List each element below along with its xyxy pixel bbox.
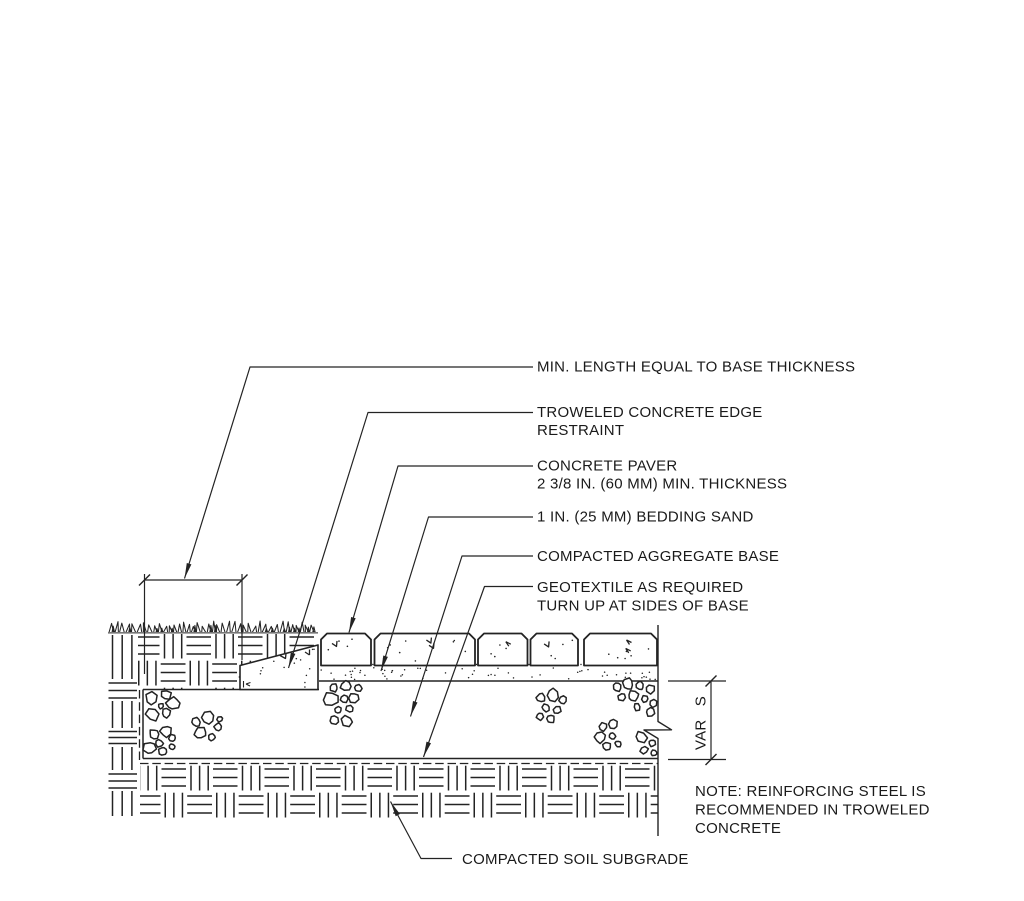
svg-text:VAR S: VAR S	[693, 696, 710, 750]
svg-text:RECOMMENDED IN TROWELED: RECOMMENDED IN TROWELED	[695, 802, 930, 819]
svg-text:CONCRETE: CONCRETE	[695, 820, 781, 837]
svg-text:MIN. LENGTH EQUAL TO BASE THIC: MIN. LENGTH EQUAL TO BASE THICKNESS	[537, 359, 855, 376]
svg-text:RESTRAINT: RESTRAINT	[537, 422, 624, 439]
svg-text:TROWELED CONCRETE EDGE: TROWELED CONCRETE EDGE	[537, 404, 763, 421]
svg-text:GEOTEXTILE AS REQUIRED: GEOTEXTILE AS REQUIRED	[537, 579, 743, 596]
svg-text:COMPACTED SOIL SUBGRADE: COMPACTED SOIL SUBGRADE	[462, 851, 689, 868]
svg-text:TURN UP AT SIDES OF BASE: TURN UP AT SIDES OF BASE	[537, 598, 749, 615]
svg-text:2 3/8 IN. (60 MM) MIN. THICKNE: 2 3/8 IN. (60 MM) MIN. THICKNESS	[537, 475, 787, 492]
svg-text:CONCRETE PAVER: CONCRETE PAVER	[537, 458, 677, 475]
svg-text:COMPACTED AGGREGATE BASE: COMPACTED AGGREGATE BASE	[537, 548, 779, 565]
svg-text:NOTE: REINFORCING STEEL IS: NOTE: REINFORCING STEEL IS	[695, 783, 926, 800]
svg-text:1 IN. (25 MM) BEDDING SAND: 1 IN. (25 MM) BEDDING SAND	[537, 509, 754, 526]
